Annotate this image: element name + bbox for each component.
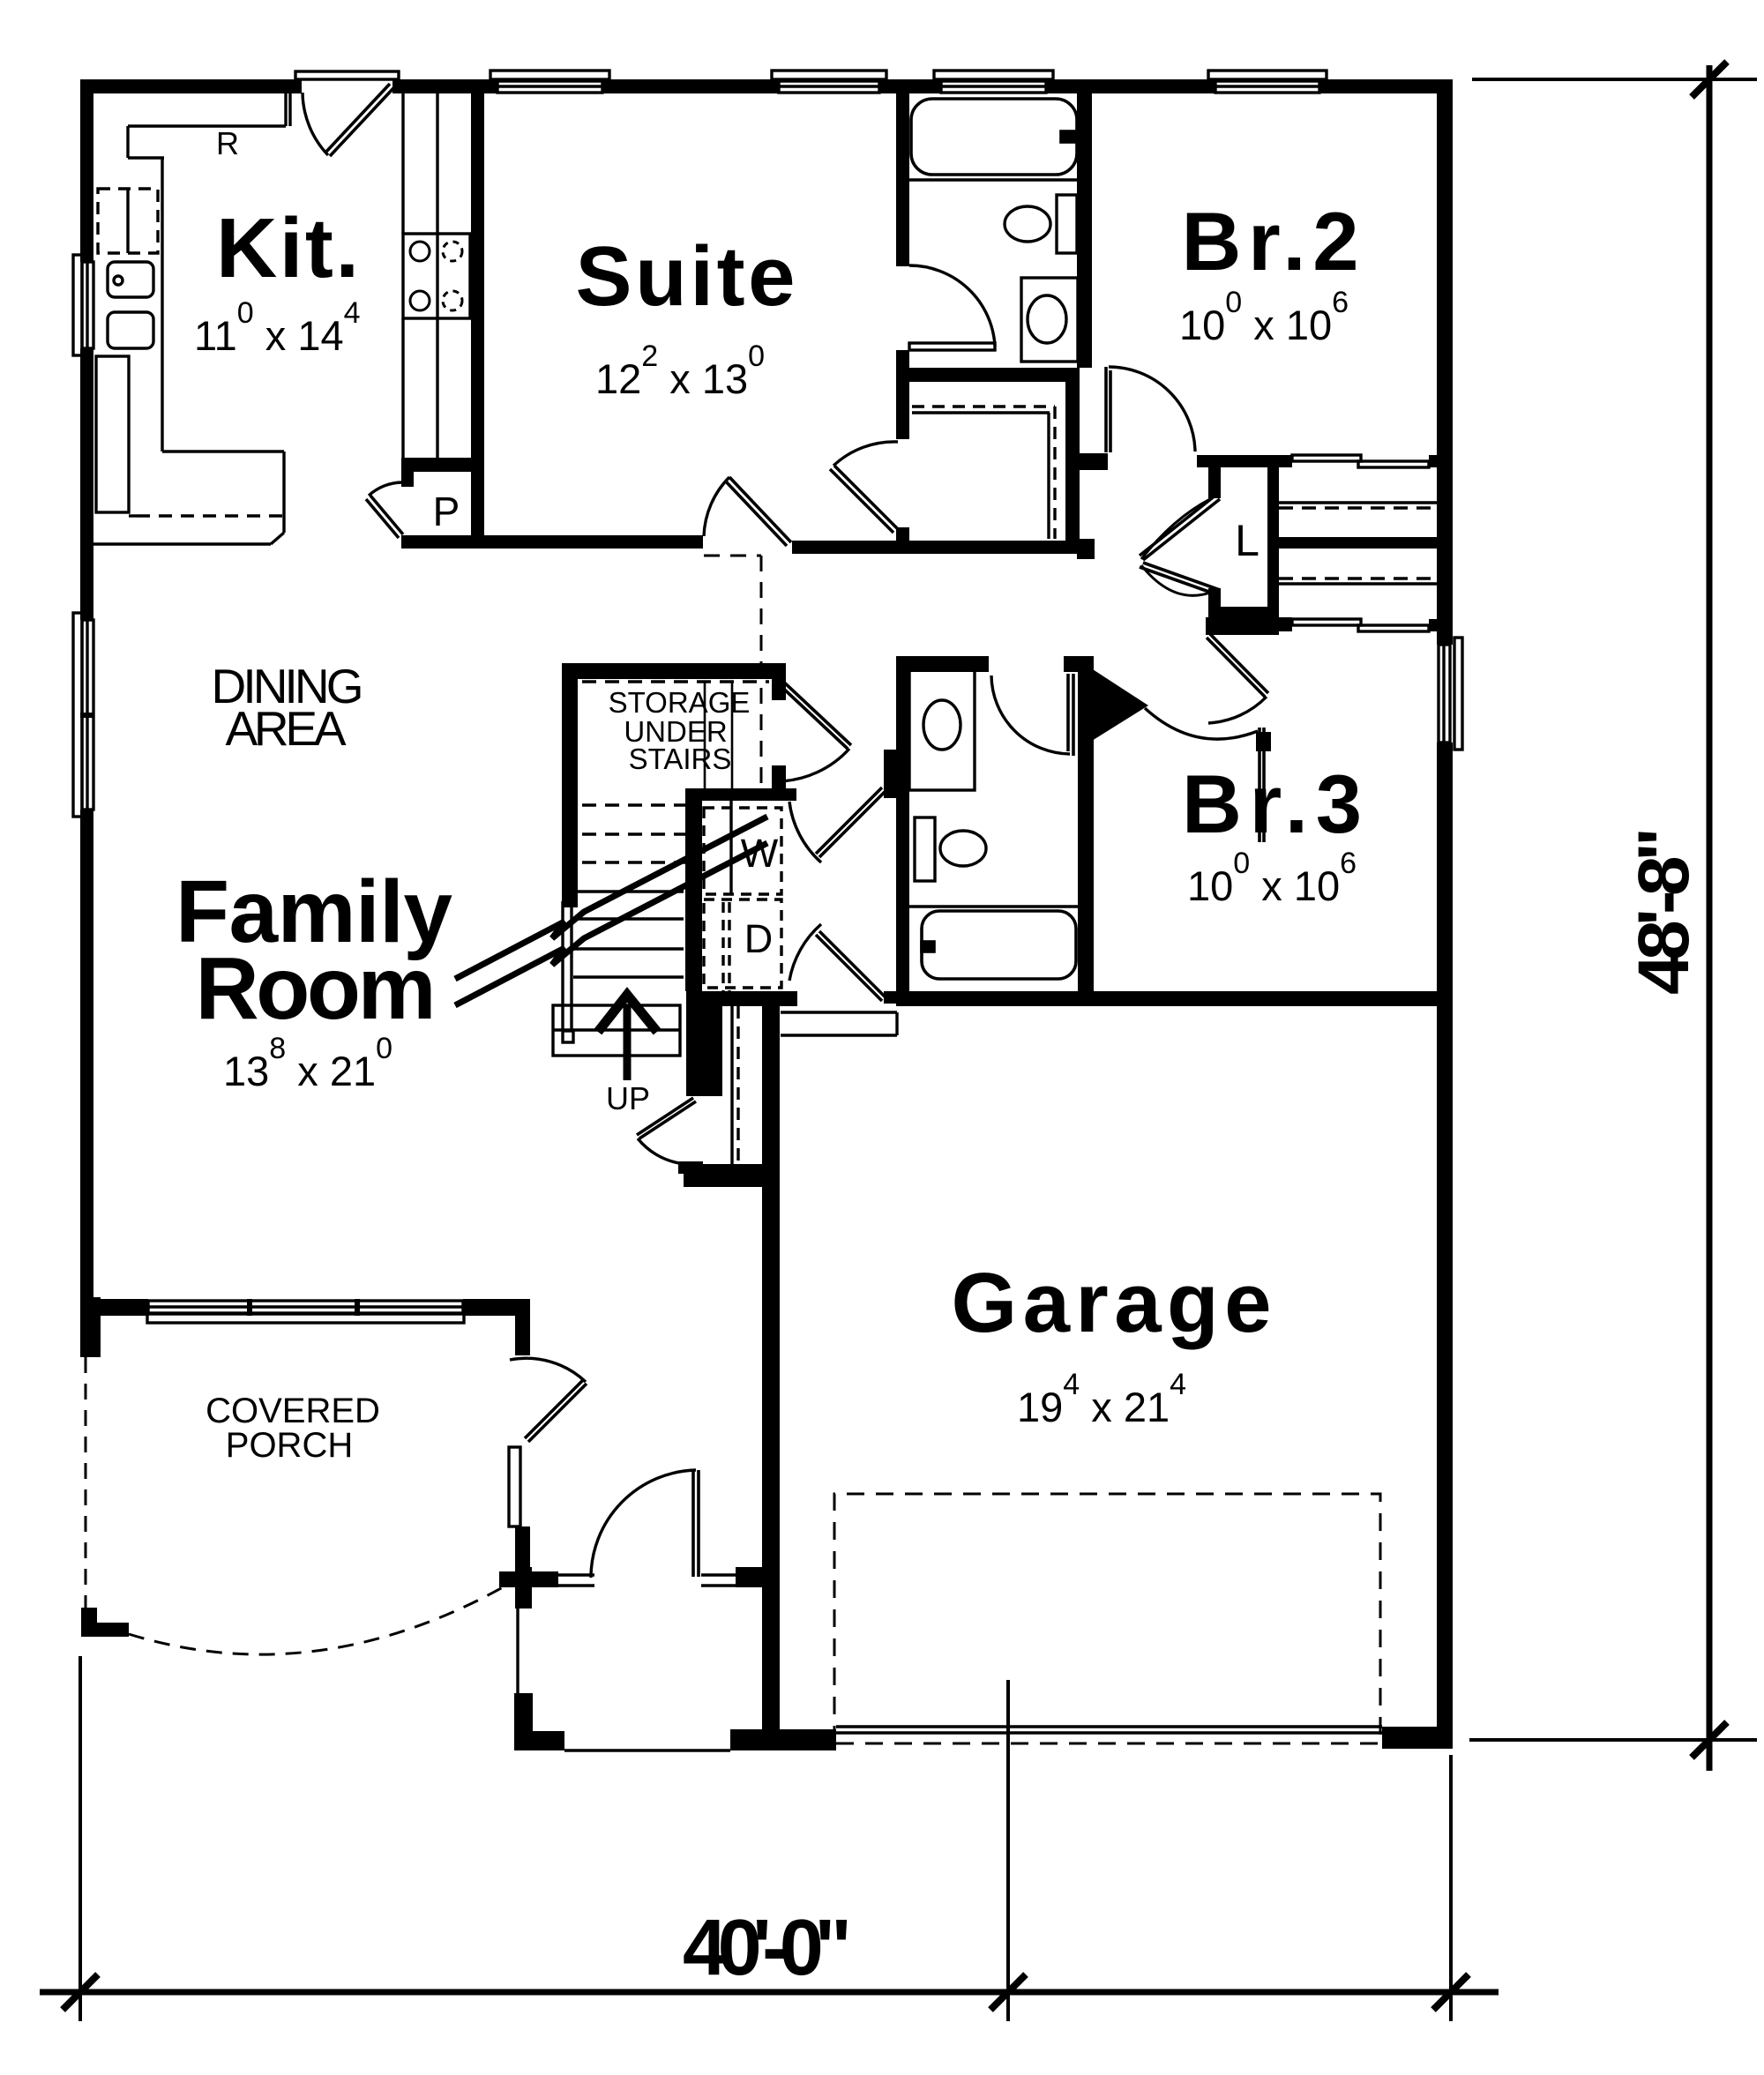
svg-text:W: W	[741, 831, 779, 876]
svg-text:Suite: Suite	[576, 229, 796, 324]
svg-text:STORAGE: STORAGE	[609, 686, 751, 719]
svg-text:PORCH: PORCH	[226, 1426, 353, 1465]
svg-text:R: R	[216, 125, 239, 161]
svg-text:COVERED: COVERED	[206, 1392, 380, 1430]
svg-text:STAIRS: STAIRS	[629, 743, 732, 775]
svg-text:40'-0": 40'-0"	[683, 1904, 852, 1992]
svg-text:AREA: AREA	[226, 701, 347, 756]
svg-text:P: P	[433, 489, 460, 534]
svg-text:D: D	[744, 916, 774, 961]
svg-text:48'-8": 48'-8"	[1624, 827, 1704, 995]
svg-text:UP: UP	[606, 1080, 650, 1116]
svg-text:Br.3: Br.3	[1182, 758, 1362, 850]
svg-text:Room: Room	[196, 939, 437, 1038]
svg-text:Kit.: Kit.	[216, 201, 359, 295]
svg-text:L: L	[1235, 516, 1259, 565]
svg-text:Br.2: Br.2	[1182, 195, 1359, 287]
